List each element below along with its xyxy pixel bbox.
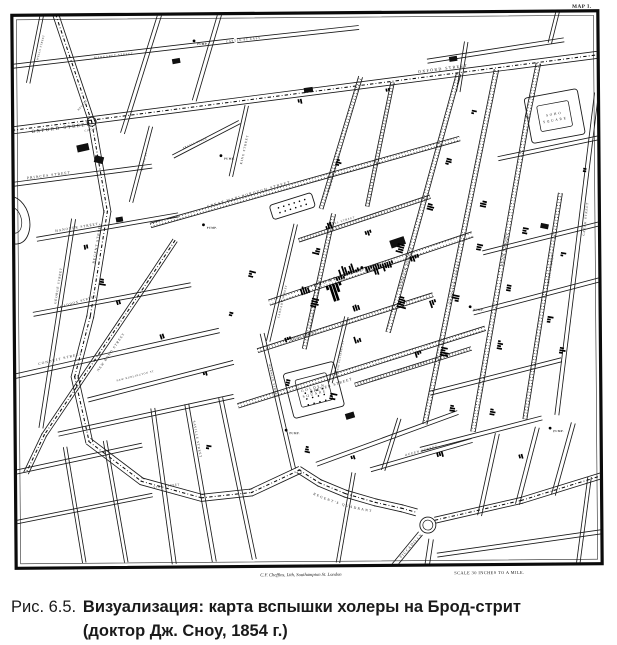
house-frontage-dots — [472, 115, 532, 431]
street-edge — [14, 493, 152, 520]
square-outline — [524, 89, 585, 144]
map-number-label: MAP 1. — [572, 4, 592, 10]
street-edge — [368, 83, 395, 207]
death-bar — [306, 447, 309, 448]
death-bar — [391, 260, 392, 263]
street-edge — [145, 239, 173, 281]
street-edge — [481, 434, 500, 516]
street-edge — [219, 398, 253, 560]
death-bar — [119, 300, 120, 304]
street-edge — [258, 297, 434, 353]
death-bar — [521, 454, 522, 459]
street-edge — [120, 13, 160, 133]
death-bar — [498, 343, 503, 344]
main-road-centerline — [147, 240, 175, 282]
house-frontage-dots — [367, 82, 394, 206]
street-edge — [515, 427, 536, 504]
death-bar — [483, 201, 487, 202]
street-edge — [300, 466, 322, 480]
main-road-centerline — [251, 470, 301, 493]
death-bar — [446, 161, 452, 163]
death-bar — [329, 398, 335, 399]
death-bar — [286, 380, 290, 381]
street-edge — [355, 350, 472, 386]
pump-icon — [193, 39, 196, 42]
death-bar — [507, 288, 511, 289]
street-edge — [87, 360, 233, 398]
house-frontage-dots — [299, 197, 431, 241]
book-figure-page: MAP 1. SOHOSQUAREGOLDENSQUARE PUMP.PUMP.… — [0, 0, 617, 645]
death-bar — [84, 245, 85, 250]
square-tree-dot — [288, 204, 290, 206]
death-bar — [559, 350, 565, 351]
cholera-map: MAP 1. SOHOSQUAREGOLDENSQUARE PUMP.PUMP.… — [0, 0, 617, 583]
death-bar — [312, 253, 319, 255]
pump-icon — [202, 223, 205, 226]
street-edge — [201, 496, 253, 502]
street-edge — [420, 416, 542, 447]
street-edge — [400, 511, 416, 516]
death-bar — [415, 255, 416, 259]
street-edge — [174, 124, 241, 158]
pump-label: PUMP. — [207, 227, 218, 230]
main-road-centerline — [375, 502, 403, 509]
house-frontage-dots — [150, 137, 461, 224]
street-edge — [430, 362, 562, 396]
death-bar — [162, 334, 164, 339]
city-square: SOHOSQUARE — [524, 89, 585, 144]
death-bar — [560, 348, 564, 349]
death-bar — [455, 300, 459, 301]
street-edge — [192, 12, 219, 100]
street-label: GREEK STREET — [582, 202, 590, 236]
main-road-centerline — [91, 121, 107, 213]
death-bar — [522, 233, 527, 234]
street-edge — [498, 139, 600, 160]
death-bar — [285, 338, 286, 342]
death-bar — [100, 282, 104, 283]
square-tree-dot — [277, 207, 279, 209]
death-bar — [547, 321, 550, 322]
death-bar — [305, 287, 307, 293]
pump-label: PUMP. — [553, 430, 564, 433]
house-frontage-dots — [421, 69, 498, 424]
death-bar — [305, 449, 308, 450]
street-edge — [41, 219, 77, 428]
street-label: GREAT PULTENEY ST — [336, 340, 345, 375]
death-bar — [380, 264, 381, 268]
death-bar — [358, 305, 360, 310]
death-bar — [427, 206, 434, 208]
death-bar — [490, 412, 495, 413]
death-bar — [498, 341, 501, 342]
main-road-centerline — [401, 508, 417, 513]
death-bar — [326, 226, 327, 229]
death-bar — [477, 244, 483, 245]
streets-layer — [10, 9, 604, 571]
death-bar — [87, 245, 88, 249]
death-bar — [561, 253, 566, 254]
pump-icon — [469, 305, 472, 308]
street-label: PETER STREET — [398, 360, 428, 372]
square-tree-dot — [300, 205, 302, 207]
street-edge — [425, 539, 430, 566]
death-bar — [497, 348, 502, 349]
map-scale-note: SCALE 30 INCHES TO A MILE. — [454, 570, 524, 576]
street-edge — [576, 477, 589, 565]
death-bar — [420, 350, 421, 353]
street-edge — [14, 443, 142, 470]
death-bar — [547, 319, 551, 320]
death-bar — [387, 262, 389, 268]
street-edge — [129, 126, 150, 202]
street-edge — [12, 58, 601, 134]
death-bar — [355, 305, 357, 311]
death-bar — [378, 264, 380, 269]
pump-label: PUMP. — [197, 43, 208, 46]
street-edge — [103, 441, 124, 563]
street-edge — [149, 242, 177, 284]
death-bar — [434, 299, 435, 302]
street-edge — [317, 414, 459, 466]
street-edge — [185, 404, 213, 562]
street-edge — [63, 447, 82, 563]
square-tree-dot — [283, 205, 285, 207]
death-bar — [298, 99, 299, 102]
death-bar — [206, 448, 209, 449]
death-bar — [100, 284, 106, 285]
death-bar — [286, 385, 290, 386]
map-frame-inner — [16, 15, 597, 564]
death-bar — [316, 249, 320, 250]
house-frontage-dots — [423, 70, 500, 425]
street-edge — [429, 358, 561, 392]
building-block — [449, 56, 458, 62]
street-label: REGENT STREET — [92, 223, 103, 264]
street-edge — [477, 433, 496, 515]
death-bar — [286, 382, 290, 383]
street-edge — [429, 539, 434, 566]
death-bars-layer — [83, 87, 588, 462]
death-bar — [417, 254, 418, 258]
building-block — [345, 412, 355, 420]
street-label: ARGYLL PLACE — [182, 137, 208, 150]
square-tree-dot — [312, 397, 314, 399]
death-bar — [351, 456, 352, 459]
death-bar — [548, 317, 554, 318]
death-bar — [523, 230, 527, 231]
figure-caption-text: Визуализация: карта вспышки холеры на Бр… — [83, 595, 521, 643]
street-edge — [53, 15, 89, 124]
street-edge — [472, 278, 600, 311]
death-bar — [428, 204, 433, 205]
death-bar — [398, 249, 403, 251]
death-bar — [330, 396, 333, 397]
street-edge — [264, 333, 296, 469]
street-edge — [421, 420, 543, 451]
death-bar — [354, 337, 356, 344]
street-edge — [67, 446, 86, 562]
death-bar — [359, 338, 360, 342]
street-edge — [551, 422, 572, 494]
pump-label: PUMP. — [289, 432, 300, 435]
death-bar — [353, 455, 354, 459]
street-edge — [71, 315, 88, 377]
death-bar — [287, 337, 288, 340]
street-label: OXFORD STREET — [418, 63, 469, 74]
pump-icon — [220, 154, 223, 157]
street-label: PICCADILLY — [399, 533, 424, 559]
main-road-centerline — [56, 14, 92, 123]
death-bar — [386, 89, 387, 92]
street-label: OXFORD STREET — [31, 122, 90, 135]
street-label: MARGARET STREET — [94, 51, 134, 59]
square-tree-dot — [305, 203, 307, 205]
death-bar — [203, 372, 204, 375]
death-bar — [371, 266, 372, 269]
square-tree-dot — [304, 199, 306, 201]
death-bar — [206, 446, 211, 447]
street-edge — [427, 38, 564, 59]
death-bar — [417, 351, 418, 355]
death-bar — [301, 99, 302, 104]
street-edge — [12, 164, 152, 182]
square-tree-dot — [289, 208, 291, 210]
street-edge — [189, 403, 217, 561]
street-label: WELLS STREET — [36, 34, 45, 60]
street-label: KING STREET — [239, 134, 250, 165]
square-outline — [0, 193, 34, 247]
street-edge — [71, 377, 86, 444]
street-edge — [78, 375, 93, 442]
square-tree-dot — [306, 398, 308, 400]
street-edge — [13, 328, 219, 374]
building-block — [172, 58, 181, 64]
street-edge — [297, 472, 319, 486]
death-bar — [301, 289, 303, 295]
death-bar — [396, 251, 403, 253]
street-edge — [548, 10, 557, 43]
death-bar — [480, 206, 486, 207]
square-outline — [269, 192, 315, 220]
death-bar — [519, 455, 520, 459]
street-edge — [88, 364, 234, 402]
death-bar — [399, 299, 405, 301]
pump-label: PUMP. — [224, 158, 235, 161]
death-bar — [229, 312, 233, 313]
death-bar — [249, 273, 252, 274]
death-bar — [439, 452, 440, 456]
death-bar — [477, 247, 482, 248]
death-bar — [315, 251, 319, 252]
street-edge — [427, 42, 564, 63]
square-tree-dot — [295, 207, 297, 209]
street-edge — [336, 472, 353, 562]
building-block — [116, 216, 124, 222]
death-bar — [339, 282, 340, 286]
map-frame — [12, 11, 602, 569]
street-label: GREAT MARLBOROUGH STREET — [207, 180, 292, 209]
street-edge — [384, 419, 401, 471]
street-edge — [150, 141, 461, 228]
square-tree-dot — [323, 394, 325, 396]
death-bar — [368, 231, 370, 236]
pump-label: PUMP. — [473, 309, 484, 312]
figure-caption: Рис. 6.5. Визуализация: карта вспышки хо… — [11, 595, 521, 643]
street-edge — [37, 219, 73, 428]
figure-number: Рис. 6.5. — [11, 595, 76, 619]
death-bar — [476, 249, 481, 250]
street-edge — [473, 116, 533, 432]
death-bar — [249, 271, 255, 273]
death-bar — [327, 286, 328, 290]
map-attribution: C.F. Cheffins, Lith, Southampton St. Lon… — [260, 572, 342, 579]
main-road-centerline — [74, 316, 91, 378]
house-frontage-dots — [469, 115, 529, 431]
death-bar — [432, 300, 434, 305]
street-edge — [339, 473, 356, 563]
death-bar — [389, 88, 390, 91]
death-bar — [229, 315, 232, 316]
city-square — [269, 192, 315, 220]
street-edge — [521, 478, 603, 503]
street-edge — [268, 232, 472, 300]
street-edge — [229, 105, 246, 176]
death-bar — [397, 246, 404, 248]
death-bar — [415, 352, 417, 358]
street-edge — [374, 505, 402, 512]
main-road-centerline — [88, 441, 142, 483]
death-bar — [427, 208, 433, 210]
pump-icon — [285, 429, 288, 432]
death-bar — [450, 406, 453, 407]
street-edge — [497, 136, 599, 157]
death-bar — [370, 230, 371, 233]
street-edge — [525, 63, 537, 117]
death-bar — [506, 290, 510, 291]
death-bar — [559, 352, 563, 353]
square-tree-dot — [298, 200, 300, 202]
square-tree-dot — [284, 210, 286, 212]
death-bar — [385, 263, 387, 268]
street-edge — [266, 224, 295, 341]
death-bar — [437, 453, 438, 457]
death-bar — [357, 340, 358, 343]
death-bar — [480, 203, 486, 204]
street-edge — [579, 477, 592, 565]
street-label: FRITH STREET — [546, 254, 555, 287]
street-label: MARSHALL STREET — [308, 288, 321, 328]
street-edge — [123, 14, 163, 134]
death-bar — [160, 335, 162, 340]
death-bar — [100, 279, 103, 280]
circus-outline — [420, 517, 436, 533]
street-edge — [375, 499, 403, 506]
street-edge — [424, 70, 501, 425]
street-edge — [269, 225, 298, 342]
street-edge — [95, 120, 111, 212]
death-bar — [353, 306, 355, 312]
building-block — [76, 143, 89, 152]
caption-line-2: (доктор Дж. Сноу, 1854 г.) — [83, 619, 521, 643]
house-frontage-dots — [257, 296, 433, 352]
death-bar — [365, 231, 366, 235]
death-bar — [471, 113, 474, 114]
death-bar — [449, 410, 454, 411]
house-frontage-dots — [150, 140, 461, 227]
street-edge — [318, 76, 360, 208]
main-road-centerline — [74, 376, 89, 443]
pump-icon — [549, 427, 552, 430]
square-tree-dot — [293, 202, 295, 204]
street-label: QUEEN STREET — [405, 444, 439, 457]
death-bar — [490, 409, 493, 410]
death-bar — [490, 414, 495, 415]
circus-inner — [423, 520, 433, 530]
square-inner — [537, 100, 573, 131]
death-bar — [389, 261, 391, 267]
building-block — [540, 223, 549, 230]
death-bar — [445, 163, 448, 164]
street-edge — [223, 397, 257, 559]
death-bar — [447, 159, 452, 160]
street-label: GEORGE STREET — [53, 267, 63, 304]
death-bar — [248, 276, 253, 277]
street-label: CASTLE ST EAST — [226, 36, 261, 44]
street-label: REGENT — [77, 99, 88, 111]
death-bar — [442, 451, 443, 456]
death-bar — [472, 110, 477, 111]
death-bar — [507, 285, 512, 286]
street-edge — [529, 64, 541, 118]
street-edge — [15, 497, 153, 524]
street-edge — [299, 198, 431, 242]
death-bar — [441, 350, 446, 351]
street-edge — [58, 13, 94, 122]
death-bar — [497, 346, 501, 347]
street-edge — [298, 195, 430, 239]
street-edge — [260, 334, 292, 470]
death-bar — [305, 451, 310, 452]
square-tree-dot — [279, 212, 281, 214]
death-bar — [116, 300, 117, 304]
death-bar — [206, 372, 207, 376]
house-frontage-dots — [366, 82, 393, 206]
street-edge — [364, 82, 391, 206]
street-edge — [468, 115, 528, 431]
street-label: NEW BURLINGTON ST — [116, 370, 154, 383]
caption-line-1: Визуализация: карта вспышки холеры на Бр… — [83, 595, 521, 619]
square-tree-dot — [317, 395, 319, 397]
house-frontage-dots — [298, 196, 430, 240]
snow-map-svg: MAP 1. SOHOSQUAREGOLDENSQUARE PUMP.PUMP.… — [0, 0, 617, 583]
street-edge — [370, 439, 472, 468]
street-edge — [88, 121, 104, 213]
death-bar — [397, 304, 404, 306]
death-bar — [523, 228, 529, 229]
street-edge — [195, 13, 222, 101]
main-road-centerline — [299, 469, 321, 483]
street-edge — [519, 428, 540, 505]
street-edge — [473, 281, 601, 314]
death-bar — [450, 408, 455, 409]
